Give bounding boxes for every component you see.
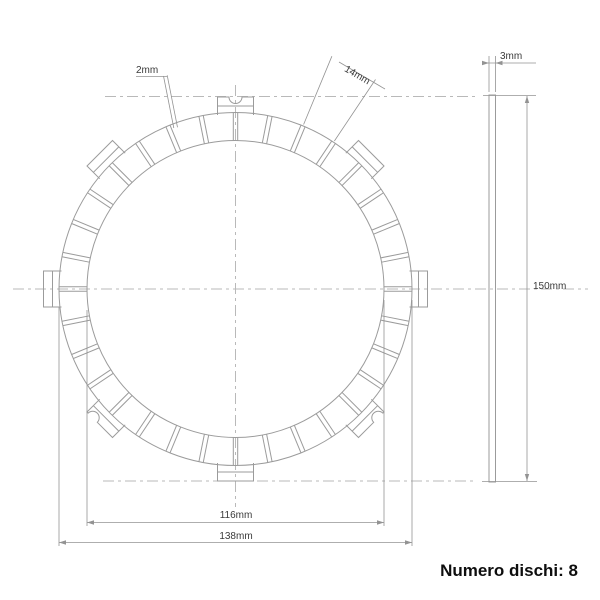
drawing-canvas [0, 0, 600, 600]
dimension-lines [59, 56, 537, 546]
groove-width-label: 2mm [136, 65, 158, 76]
overall-diameter-label: 150mm [533, 281, 566, 292]
outer-diameter-label: 138mm [205, 531, 267, 542]
centerlines [13, 85, 588, 507]
disc-count-note: Numero dischi: 8 [440, 561, 578, 581]
inner-diameter-label: 116mm [205, 510, 267, 521]
dimension-arrows [59, 61, 529, 545]
thickness-label: 3mm [500, 51, 522, 62]
clutch-plate-technical-drawing: 2mm 14mm 3mm 150mm 116mm 138mm Numero di… [0, 0, 600, 600]
